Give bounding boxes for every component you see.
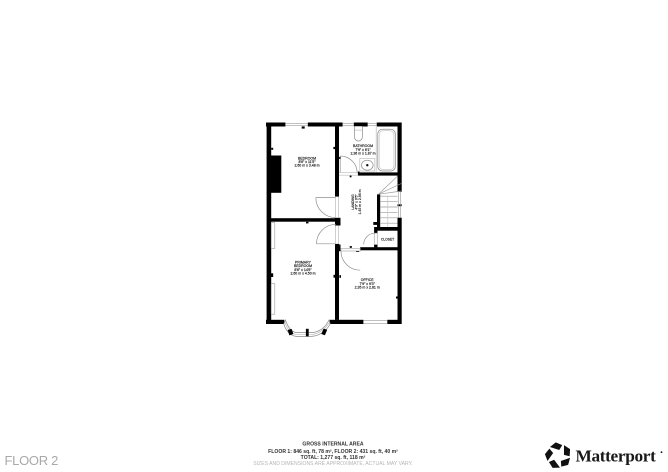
svg-text:2.60 m x 4.50 m: 2.60 m x 4.50 m [290, 272, 315, 276]
svg-text:2.60 m x 3.48 m: 2.60 m x 3.48 m [294, 164, 319, 168]
svg-text:2.36 m x 1.87 m: 2.36 m x 1.87 m [350, 152, 375, 156]
svg-text:FLOOR 1: 846 sq. ft, 78 m², FL: FLOOR 1: 846 sq. ft, 78 m², FLOOR 2: 431… [268, 449, 398, 455]
svg-text:FLOOR 2: FLOOR 2 [5, 453, 59, 468]
svg-text:CLOSET: CLOSET [381, 237, 394, 241]
svg-text:SIZES AND DIMENSIONS ARE APPRO: SIZES AND DIMENSIONS ARE APPROXIMATE, AC… [253, 461, 412, 467]
svg-text:2.35 m x 2.81 m: 2.35 m x 2.81 m [355, 286, 380, 290]
svg-text:1.45 m x 2.86 m: 1.45 m x 2.86 m [358, 189, 362, 214]
svg-text:TOTAL: 1,277 sq. ft, 118 m²: TOTAL: 1,277 sq. ft, 118 m² [301, 455, 366, 461]
svg-text:GROSS INTERNAL AREA: GROSS INTERNAL AREA [302, 442, 363, 448]
svg-text:Matterport: Matterport [576, 447, 657, 466]
